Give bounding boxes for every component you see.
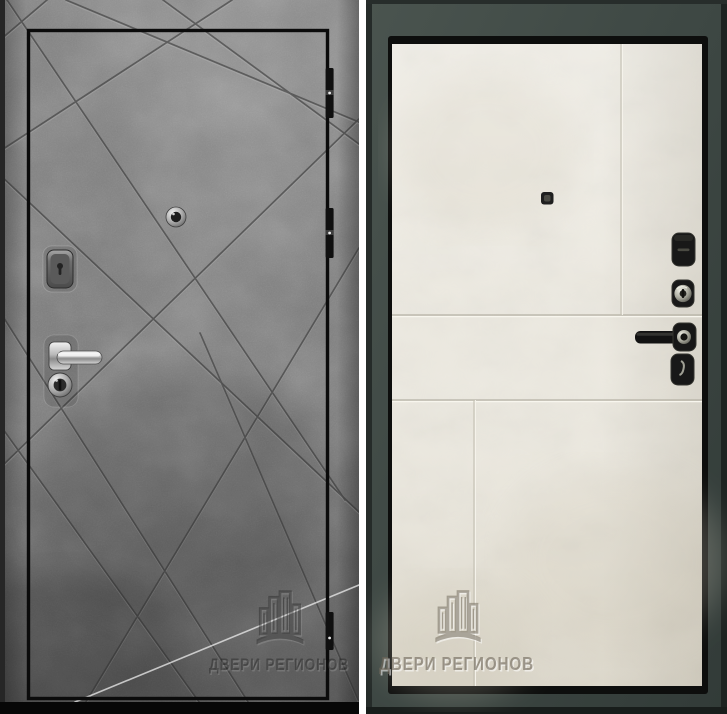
lock-escutcheon <box>43 246 77 292</box>
key-cylinder-icon <box>48 373 72 397</box>
watermark-text: ДВЕРИ РЕГИОНОВ <box>209 655 349 674</box>
product-photo-two-door-sides: ДВЕРИ РЕГИОНОВ ДВЕРИ РЕГИОНОВ <box>0 0 727 714</box>
left-edge-strip <box>0 0 5 714</box>
peephole-icon <box>541 192 554 205</box>
door-exterior-photo: ДВЕРИ РЕГИОНОВ ДВЕРИ РЕГИОНОВ <box>0 0 359 714</box>
hinge-middle-icon <box>326 208 334 258</box>
key-cylinder-icon <box>672 280 694 307</box>
door-interior-photo: ДВЕРИ РЕГИОНОВ ДВЕРИ РЕГИОНОВ <box>366 0 727 714</box>
photo-divider-gap <box>359 0 366 714</box>
peephole-icon <box>166 207 186 227</box>
hinge-top-icon <box>326 68 334 118</box>
hinge-bottom-icon <box>326 612 334 650</box>
bottom-strip <box>0 702 359 714</box>
watermark-text: ДВЕРИ РЕГИОНОВ <box>379 654 534 674</box>
wc-escutcheon-icon <box>671 354 694 385</box>
thumbturn-escutcheon-icon <box>672 233 695 266</box>
